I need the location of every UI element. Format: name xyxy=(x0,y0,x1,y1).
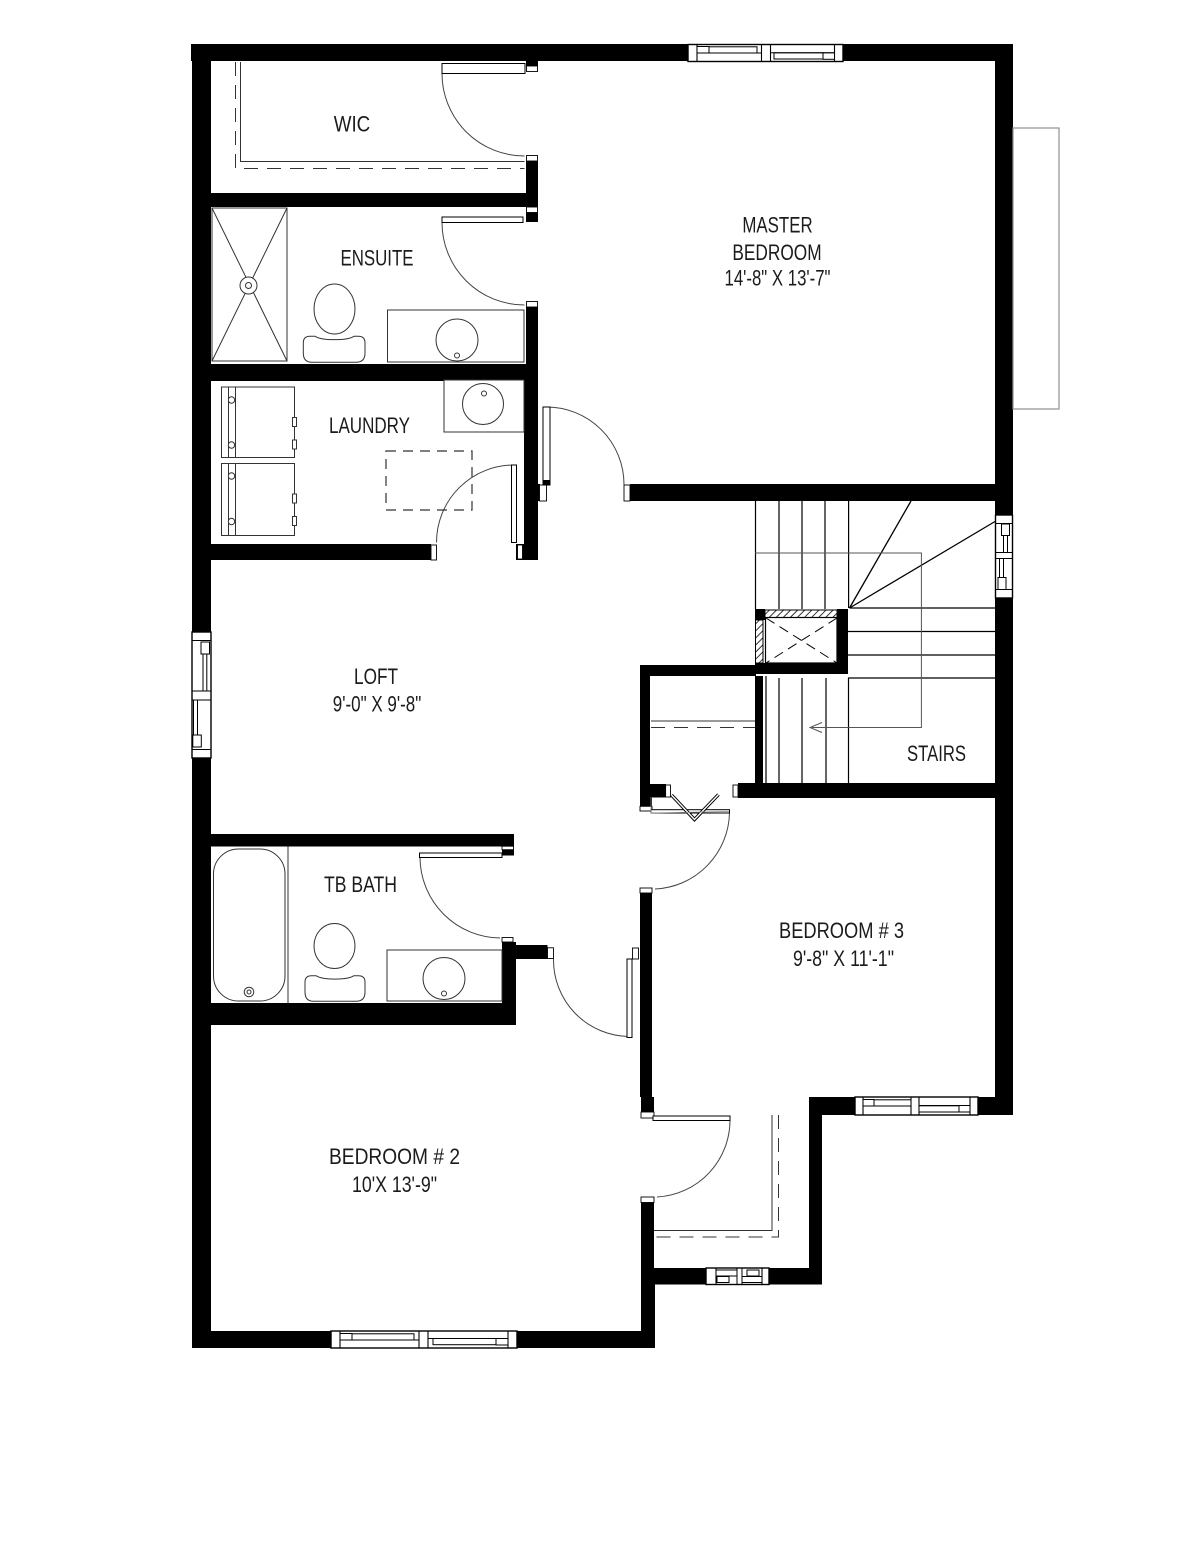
svg-text:BEDROOM # 2: BEDROOM # 2 xyxy=(329,1144,460,1169)
svg-text:10'X 13'-9": 10'X 13'-9" xyxy=(352,1172,437,1197)
svg-text:WIC: WIC xyxy=(334,112,371,137)
svg-text:9'-8" X 11'-1": 9'-8" X 11'-1" xyxy=(793,946,894,971)
svg-text:TB BATH: TB BATH xyxy=(324,872,397,897)
svg-text:BEDROOM # 3: BEDROOM # 3 xyxy=(779,918,904,943)
svg-text:9'-0" X 9'-8": 9'-0" X 9'-8" xyxy=(333,692,422,717)
svg-text:BEDROOM: BEDROOM xyxy=(732,240,821,265)
svg-text:ENSUITE: ENSUITE xyxy=(341,246,414,271)
svg-text:14'-8" X 13'-7": 14'-8" X 13'-7" xyxy=(725,265,831,290)
svg-text:LOFT: LOFT xyxy=(354,664,398,689)
svg-text:MASTER: MASTER xyxy=(742,213,812,238)
svg-text:LAUNDRY: LAUNDRY xyxy=(329,413,410,438)
svg-text:STAIRS: STAIRS xyxy=(907,741,966,766)
